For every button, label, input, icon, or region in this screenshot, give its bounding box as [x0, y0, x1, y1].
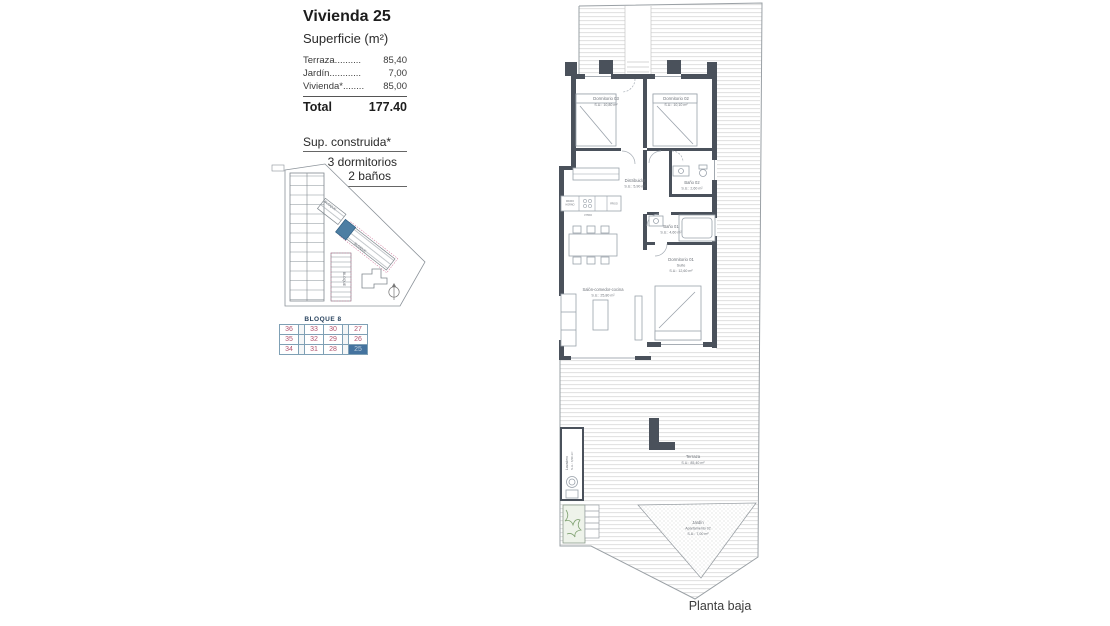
bed-icon: [653, 94, 697, 146]
unit-title: Vivienda 25: [303, 8, 433, 26]
unit-cell: 36: [280, 325, 299, 335]
site-plan: BLOQUE BLOQUE BLOQUE: [268, 156, 458, 314]
unit-cell: 28: [324, 345, 343, 355]
built-note: Sup. construida*: [303, 135, 407, 152]
unit-cell: 29: [324, 335, 343, 345]
room-name: Terraza: [686, 454, 701, 459]
total-value: 177.40: [369, 100, 407, 114]
room-subname: Suite: [677, 264, 686, 268]
unit-cell: 32: [305, 335, 324, 345]
plan-caption: Planta baja: [645, 599, 795, 613]
surface-row-jardin: Jardín............ 7,00: [303, 67, 407, 80]
site-block-label-c: BLOQUE: [342, 272, 346, 287]
room-area: S.U.: 10,10 m²: [664, 103, 688, 107]
rowhouse-strip-left: [290, 173, 324, 301]
room-area: S.U.: 10,80 m²: [594, 103, 618, 107]
unit-cell: 27: [349, 325, 368, 335]
room-area: S.U.: 3,50 m²: [570, 452, 574, 470]
surface-label: Terraza..........: [303, 54, 361, 67]
room-name: Jardín: [692, 520, 704, 525]
surface-value: 7,00: [389, 67, 408, 80]
exterior-steps: [585, 505, 599, 538]
room-name: Dormitorio 03: [593, 96, 619, 101]
unit-cell-highlighted: 25: [349, 345, 368, 355]
room-name: Dormitorio 02: [663, 96, 689, 101]
planter: [563, 505, 585, 543]
floor-plan: Dormitorio 03 S.U.: 10,80 m² Dormitorio …: [543, 0, 888, 626]
unit-cell: 35: [280, 335, 299, 345]
surface-total-row: Total 177.40: [303, 96, 407, 114]
sink: [673, 166, 689, 176]
room-dormitorio-03: Dormitorio 03 S.U.: 10,80 m²: [576, 94, 620, 146]
block-table-title: BLOQUE 8: [279, 316, 367, 323]
kitchen-label-horno: HORNO: [566, 204, 575, 207]
room-area: S.U.: 25,80 m²: [591, 294, 615, 298]
sofa: [561, 294, 576, 346]
room-area: S.U.: 7,00 m²: [687, 532, 709, 536]
room-dormitorio-02: Dormitorio 02 S.U.: 10,10 m²: [653, 94, 697, 146]
unit-cell: 30: [324, 325, 343, 335]
room-subname: Apartamento 02: [685, 527, 711, 531]
surface-value: 85,40: [383, 54, 407, 67]
surface-label: Vivienda*........: [303, 80, 364, 93]
block-table: BLOQUE 8 36 33 30 27 35 32 29 26 34: [279, 316, 375, 355]
unit-cell: 33: [305, 325, 324, 335]
room-name: Salón-comedor-cocina: [583, 287, 625, 292]
dining-table: [569, 234, 617, 256]
page: Vivienda 25 Superficie (m²) Terraza.....…: [0, 0, 1110, 626]
tv-unit: [635, 296, 642, 340]
room-area: S.U.: 4,60 m²: [660, 231, 682, 235]
surface-value: 85,00: [383, 80, 407, 93]
room-area: S.U.: 85,40 m²: [681, 461, 705, 465]
surface-row-vivienda: Vivienda*........ 85,00: [303, 80, 407, 93]
room-area: S.U.: 2,60 m²: [681, 187, 703, 191]
room-name: Baño 01: [663, 224, 679, 229]
kitchen-label-frigo: FRIGO: [610, 203, 618, 206]
unit-cell: 26: [349, 335, 368, 345]
room-name: Distribuidor: [625, 178, 646, 183]
room-area: S.U.: 12,60 m²: [669, 269, 693, 273]
coffee-table: [593, 300, 608, 330]
room-lavadero: Lavadero S.U.: 3,50 m²: [561, 428, 583, 500]
surface-row-terraza: Terraza.......... 85,40: [303, 54, 407, 67]
total-label: Total: [303, 100, 332, 114]
surface-label: Jardín............: [303, 67, 361, 80]
room-name: Lavadero: [565, 456, 569, 470]
room-name: Dormitorio 01: [668, 257, 694, 262]
unit-cell: 34: [280, 345, 299, 355]
room-name: Baño 02: [684, 180, 700, 185]
sink: [649, 216, 663, 226]
surface-subtitle: Superficie (m²): [303, 31, 433, 46]
unit-cell: 31: [305, 345, 324, 355]
rowhouse-strip-lower: [331, 253, 351, 301]
bathtub: [679, 215, 715, 241]
room-area: S.U.: 5,90 m²: [624, 185, 646, 189]
kitchen-label-vitro: VITRO: [584, 213, 592, 217]
unit-grid: 36 33 30 27 35 32 29 26 34 31 28: [279, 324, 368, 355]
bed-icon: [655, 286, 701, 340]
bed-icon: [576, 94, 616, 146]
